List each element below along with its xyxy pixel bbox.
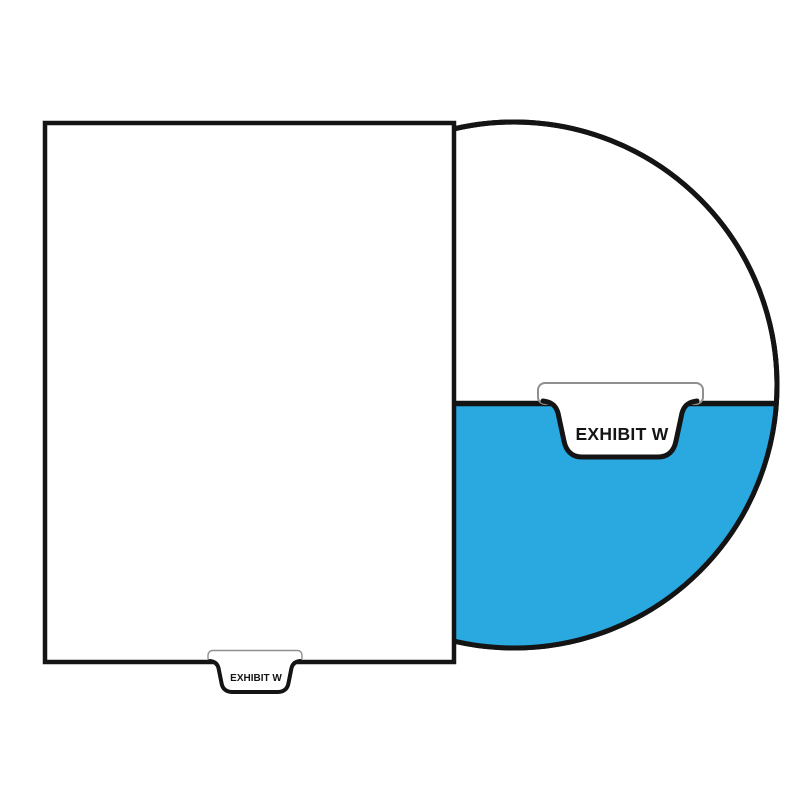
divider-diagram-svg: EXHIBIT W EXHIBIT W <box>0 0 800 800</box>
divider-sheet-group: EXHIBIT W <box>45 123 454 692</box>
magnified-tab-top-flap <box>538 383 703 404</box>
divider-sheet <box>45 123 454 662</box>
sheet-tab-top-flap <box>208 651 302 663</box>
product-illustration: EXHIBIT W EXHIBIT W <box>0 0 800 800</box>
magnified-tab-label: EXHIBIT W <box>575 424 668 444</box>
sheet-tab-label: EXHIBIT W <box>230 673 282 684</box>
